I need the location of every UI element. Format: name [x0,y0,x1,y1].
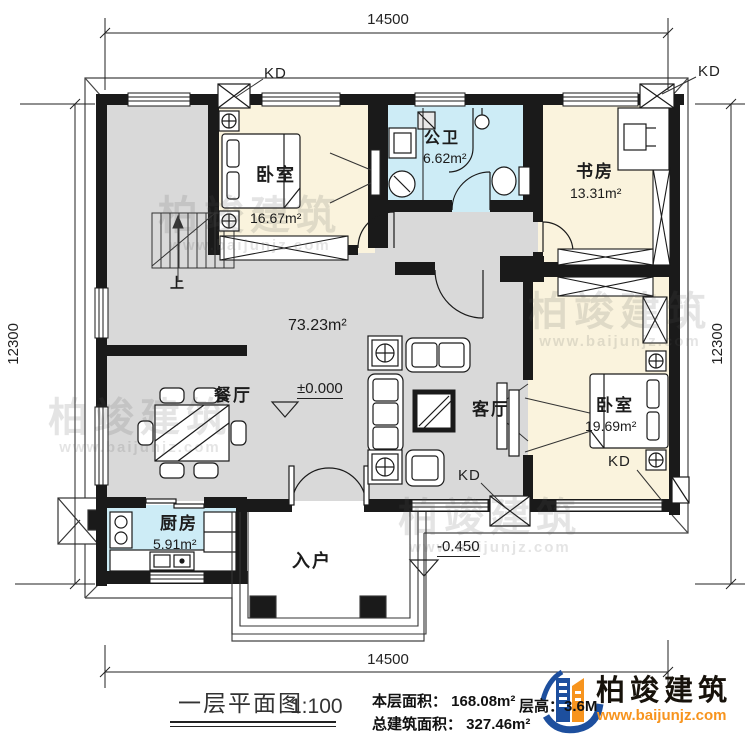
hall-area-label: 73.23m² [288,318,347,335]
room-area-bedroom1: 16.67m² [250,211,301,226]
ac-unit [672,477,689,503]
room-area-bedroom2: 19.69m² [585,419,636,434]
drawing-scale: 1:100 [290,696,343,718]
sofa-3seat [368,374,403,452]
nightstand [646,450,666,470]
pocket-door-panel [371,150,380,195]
dimension-left: 12300 [6,314,22,374]
end-table [368,336,402,370]
kd-label-bedroom2: KD [608,454,631,470]
study-desk [618,108,669,170]
kitchen-sink [150,552,194,570]
coffee-table [415,392,453,430]
room-label-bathroom: 公卫 [424,131,460,148]
room-label-entry: 入户 [292,552,332,571]
room-label-living: 客厅 [472,401,510,419]
room-label-kitchen: 厨房 [160,515,198,533]
kd-label-top-left: KD [264,66,287,82]
nightstand [646,351,666,371]
floor-area-stat: 本层面积： 168.08m² [372,694,515,710]
title-underline [170,721,336,727]
nightstand [219,211,239,231]
dimension-top: 14500 [358,12,418,28]
level-porch-label: -0.450 [437,539,480,557]
room-area-study: 13.31m² [570,186,621,201]
kd-label-top-right: KD [698,64,721,80]
end-table [368,450,402,484]
dimension-bottom: 14500 [358,652,418,668]
storey-height-stat: 层高：3.6M [519,699,597,715]
kd-label-living: KD [458,468,481,484]
toilet [492,167,530,195]
loveseat [406,338,470,372]
logo-company-name: 柏竣建筑 [596,676,732,706]
room-label-bedroom1: 卧室 [256,166,296,185]
total-area-stat: 总建筑面积： 327.46m² [372,717,530,733]
chimney [58,498,98,544]
level-zero-label: ±0.000 [297,381,343,399]
stairs-up-label: 上 [170,276,184,291]
floor-plan-drawing [0,0,750,741]
floor-plan-page: 柏竣建筑 www.baijunjz.com 柏竣建筑 www.baijunjz.… [0,0,750,741]
dimension-right: 12300 [710,314,726,374]
nightstand [219,111,239,131]
room-area-kitchen: 5.91m² [153,537,197,552]
room-area-bathroom: 6.62m² [423,151,467,166]
room-label-study: 书房 [576,163,614,181]
armchair [406,450,444,486]
room-label-dining: 餐厅 [214,387,252,405]
drawing-title: 一层平面图 [178,691,303,715]
room-label-bedroom2: 卧室 [596,397,634,415]
logo-website: www.baijunjz.com [597,708,726,724]
